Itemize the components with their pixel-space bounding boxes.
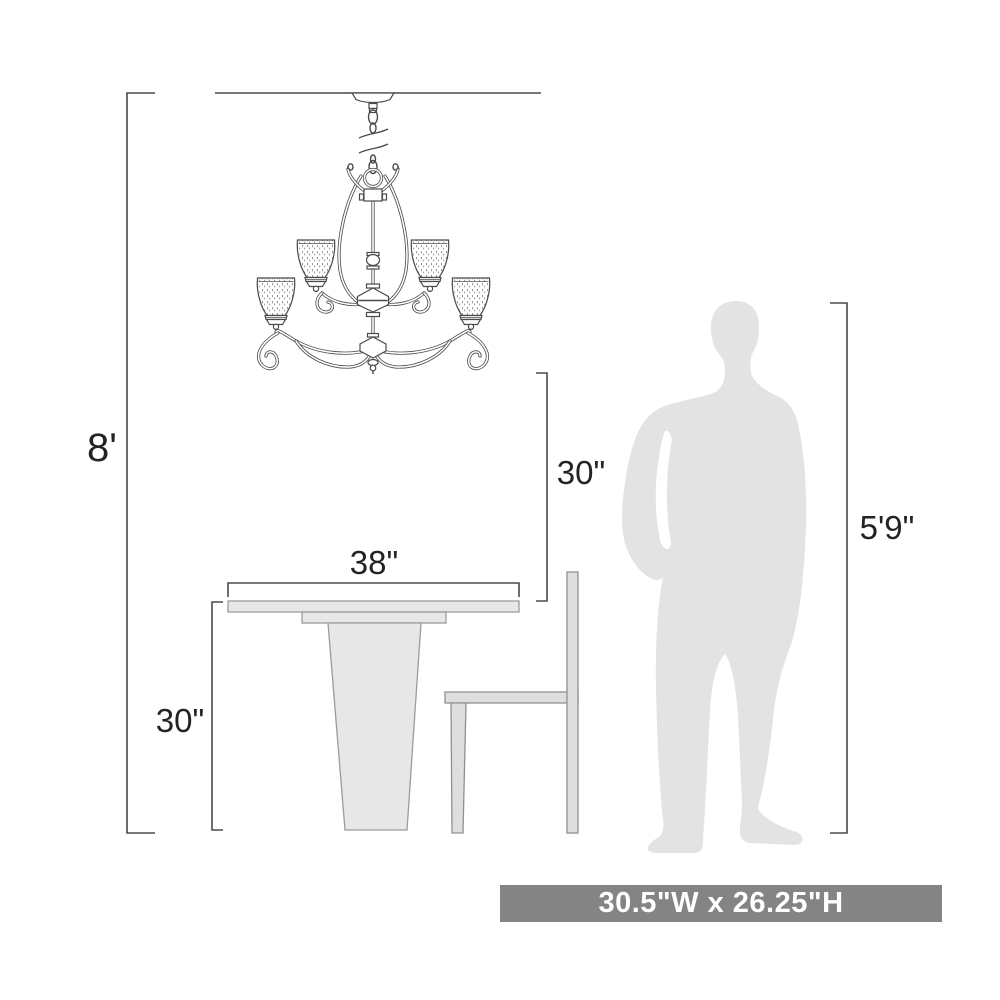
size-banner: 30.5"W x 26.25"H (500, 885, 942, 922)
dim-bracket-table-width (228, 583, 519, 597)
ceiling-height-label: 8' (68, 428, 136, 468)
person-height-label: 5'9" (849, 511, 925, 544)
dimension-diagram: 8' 30" 38" 30" 5'9" 30.5"W x 26.25"H (0, 0, 1000, 1000)
chandelier-illustration (257, 93, 490, 374)
diagram-artwork (0, 0, 1000, 1000)
dim-bracket-person-height (830, 303, 847, 833)
dim-bracket-chandelier-drop (536, 373, 547, 601)
table-height-label: 30" (146, 704, 214, 737)
chandelier-drop-label: 30" (548, 456, 614, 489)
table-width-label: 38" (341, 546, 407, 579)
dining-table-illustration (228, 601, 519, 830)
person-silhouette (622, 301, 806, 853)
size-banner-text: 30.5"W x 26.25"H (598, 887, 843, 920)
